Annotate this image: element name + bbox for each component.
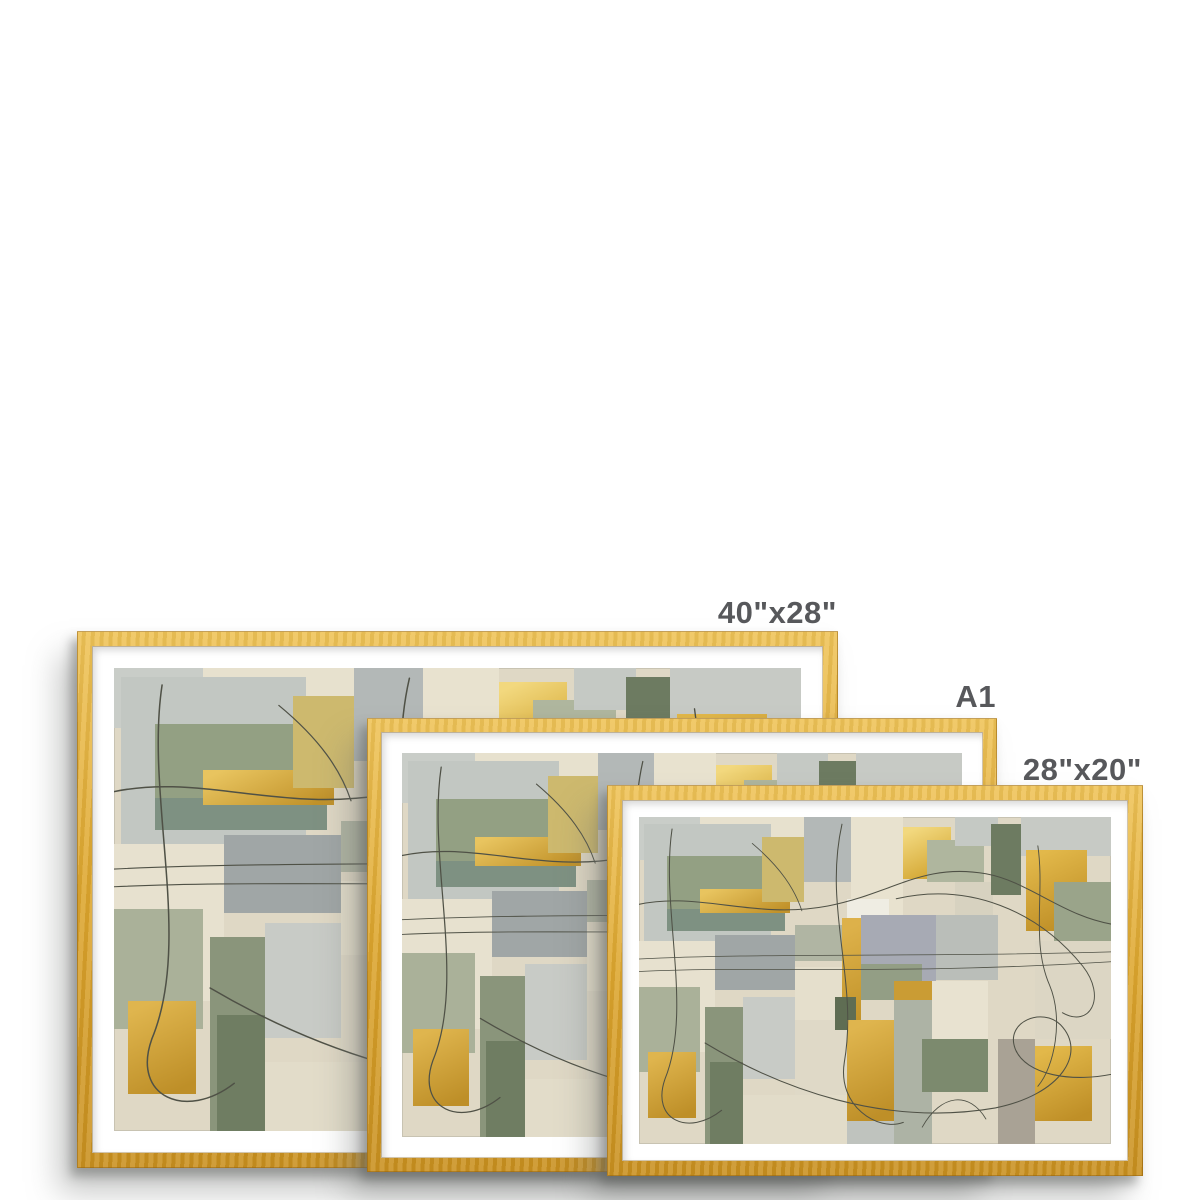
size-label: 28"x20" — [1023, 754, 1142, 786]
size-label: 40"x28" — [718, 597, 837, 629]
size-label: A1 — [955, 681, 996, 713]
artwork-abstract-collage — [639, 817, 1111, 1144]
frame-mat — [622, 800, 1128, 1161]
framed-print: 28"x20" — [607, 785, 1143, 1176]
print-size-comparison: 40"x28" A1 28"x20" — [0, 0, 1200, 1200]
squiggle-lines-art — [639, 817, 1111, 1144]
